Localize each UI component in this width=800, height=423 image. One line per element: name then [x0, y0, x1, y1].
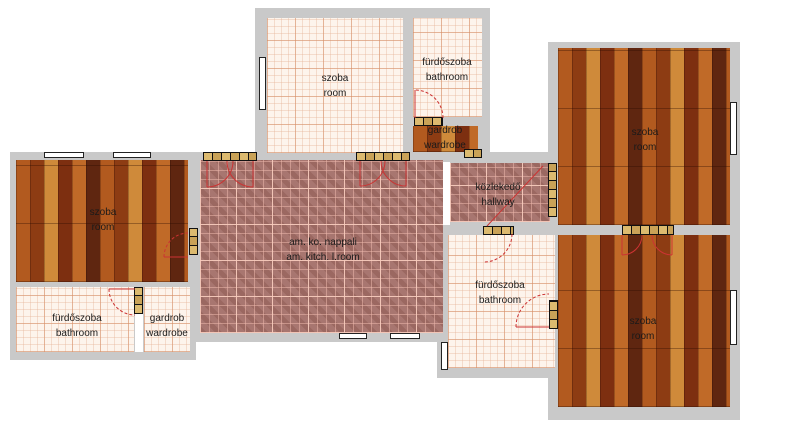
room-name-hu: gardrob	[405, 123, 485, 138]
room-name-hu: am. ko. nappali	[253, 235, 393, 250]
room-name-en: wardrobe	[132, 326, 202, 341]
room-name-hu: fürdőszoba	[450, 278, 550, 293]
room-name-en: hallway	[448, 195, 548, 210]
label-room-left: szoba room	[53, 205, 153, 235]
room-name-hu: fürdőszoba	[407, 55, 487, 70]
room-name-en: am. kitch. l.room	[253, 250, 393, 265]
label-wardrobe-left: gardrob wardrobe	[132, 311, 202, 341]
room-name-en: room	[593, 329, 693, 344]
room-name-hu: szoba	[53, 205, 153, 220]
floor-plan: szoba room fürdőszoba bathroom gardrob w…	[0, 0, 800, 423]
room-name-en: wardrobe	[405, 138, 485, 153]
room-name-en: bathroom	[27, 326, 127, 341]
label-room-right-bottom: szoba room	[593, 314, 693, 344]
label-room-top-center: szoba room	[285, 71, 385, 101]
room-name-en: bathroom	[450, 293, 550, 308]
label-bathroom-top: fürdőszoba bathroom	[407, 55, 487, 85]
label-hallway: közlekedő hallway	[448, 180, 548, 210]
room-name-hu: szoba	[595, 125, 695, 140]
room-name-hu: gardrob	[132, 311, 202, 326]
label-bathroom-bottom: fürdőszoba bathroom	[450, 278, 550, 308]
label-bathroom-left: fürdőszoba bathroom	[27, 311, 127, 341]
label-wardrobe-top: gardrob wardrobe	[405, 123, 485, 153]
room-name-hu: közlekedő	[448, 180, 548, 195]
room-name-hu: szoba	[285, 71, 385, 86]
room-name-en: room	[53, 220, 153, 235]
room-name-hu: fürdőszoba	[27, 311, 127, 326]
room-name-en: bathroom	[407, 70, 487, 85]
room-name-en: room	[595, 140, 695, 155]
room-name-en: room	[285, 86, 385, 101]
label-room-right-top: szoba room	[595, 125, 695, 155]
label-living-kitchen: am. ko. nappali am. kitch. l.room	[253, 235, 393, 265]
room-name-hu: szoba	[593, 314, 693, 329]
